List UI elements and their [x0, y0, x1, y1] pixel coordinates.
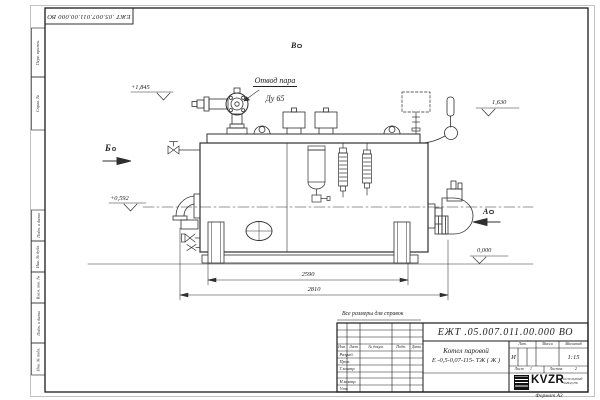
pressure-gauge-loop: [424, 97, 458, 143]
format-note: Формат А3: [510, 393, 588, 399]
row-razrab: Разраб.: [338, 351, 364, 358]
dimension-label-inner: 2590: [288, 271, 328, 278]
margin-cell-perv-primen: Перв. примен.: [31, 28, 45, 77]
col-dokum: № докум.: [360, 344, 392, 351]
view-a-mark-icon: [489, 210, 494, 215]
elevation-marks: [109, 92, 519, 264]
kvzr-logo-icon: [514, 375, 529, 390]
top-stamp: ЕЖТ .05.007.011.00.000 ВО: [45, 8, 133, 24]
doc-number: ЕЖТ .05.007.011.00.000 ВО: [423, 324, 588, 341]
view-label-v: В: [291, 41, 302, 50]
view-v-mark-icon: [297, 44, 302, 49]
col-data: Дата: [410, 344, 423, 351]
manhole: [246, 222, 272, 241]
base-skid: [202, 255, 418, 263]
elevation-label-zero: 0,000: [477, 247, 491, 254]
drawing-sheet: ЕЖТ .05.007.011.00.000 ВО Перв. примен. …: [0, 0, 600, 400]
top-stamp-text: ЕЖТ .05.007.011.00.000 ВО: [47, 13, 131, 20]
drain-valves: [182, 234, 201, 251]
company-name: KVZR: [531, 374, 564, 386]
sheet-value: 1: [527, 366, 535, 373]
reference-note: Все размеры для справок: [342, 311, 403, 317]
feedwater-elbow: [173, 194, 200, 229]
margin-cell-vzam-inv: Взам. инв. №: [31, 272, 45, 303]
lifting-lugs: [254, 126, 400, 134]
elevation-label-top: +1,845: [131, 84, 150, 91]
margin-cell-podp-data-1: Подп. и дата: [31, 210, 45, 241]
lit-value: И: [509, 350, 518, 365]
view-b-arrow-icon: [117, 158, 131, 165]
view-a-arrow-icon: [473, 219, 487, 226]
boiler-drawing: [88, 88, 533, 300]
row-prov: Пров.: [338, 358, 364, 365]
margin-cell-sprav-no: Справ. №: [31, 77, 45, 130]
elevation-label-right: 1,630: [492, 99, 506, 106]
callout-line1: Отвод пара: [253, 76, 298, 87]
product-name: Котел паровой: [424, 347, 508, 355]
sheets-value: 2: [570, 366, 582, 373]
view-label-a: А: [483, 207, 494, 216]
callout-line2: Ду 65: [266, 94, 285, 103]
view-b-mark-icon: [112, 147, 117, 152]
row-tkontr: Т.контр.: [338, 365, 364, 372]
margin-cell-inv-dubl: Инв. № дубл.: [31, 241, 45, 272]
top-hatches: [283, 108, 337, 134]
row-nkontr: Н.контр.: [338, 378, 364, 385]
level-gauge-devices: [308, 143, 372, 202]
sheets-label: Листов: [545, 366, 567, 373]
company-subtitle: КОТЕЛЬНЫЙ ЗАВОД РФ: [563, 377, 582, 385]
col-podp: Подп.: [392, 344, 410, 351]
sheet-label: Лист: [511, 366, 527, 373]
scale-label: Масштаб: [559, 341, 588, 348]
steam-outlet-callout: Отвод пара Ду 65: [238, 70, 312, 106]
mass-label: Масса: [536, 341, 559, 348]
instrument-box: [402, 92, 430, 134]
support-legs: [208, 222, 410, 263]
lit-label: Лит.: [509, 341, 536, 348]
view-label-b: Б: [105, 143, 116, 153]
col-list: Лист: [347, 344, 360, 351]
margin-cell-inv-podl: Инв. № подл.: [31, 343, 45, 375]
dimension-label-outer: 2810: [294, 286, 334, 293]
elevation-label-mid: +0,592: [110, 195, 129, 202]
scale-value: 1:15: [559, 350, 588, 365]
product-type: Е -0,5-0,07-115- ТЖ ( Ж ): [424, 357, 508, 364]
view-arrows: [103, 158, 500, 226]
burner: [428, 181, 473, 234]
left-top-valve: [168, 142, 200, 155]
col-izm: Изм.: [337, 344, 347, 351]
margin-cell-podp-data-2: Подп. и дата: [31, 303, 45, 343]
row-utv: Утв.: [338, 385, 364, 392]
